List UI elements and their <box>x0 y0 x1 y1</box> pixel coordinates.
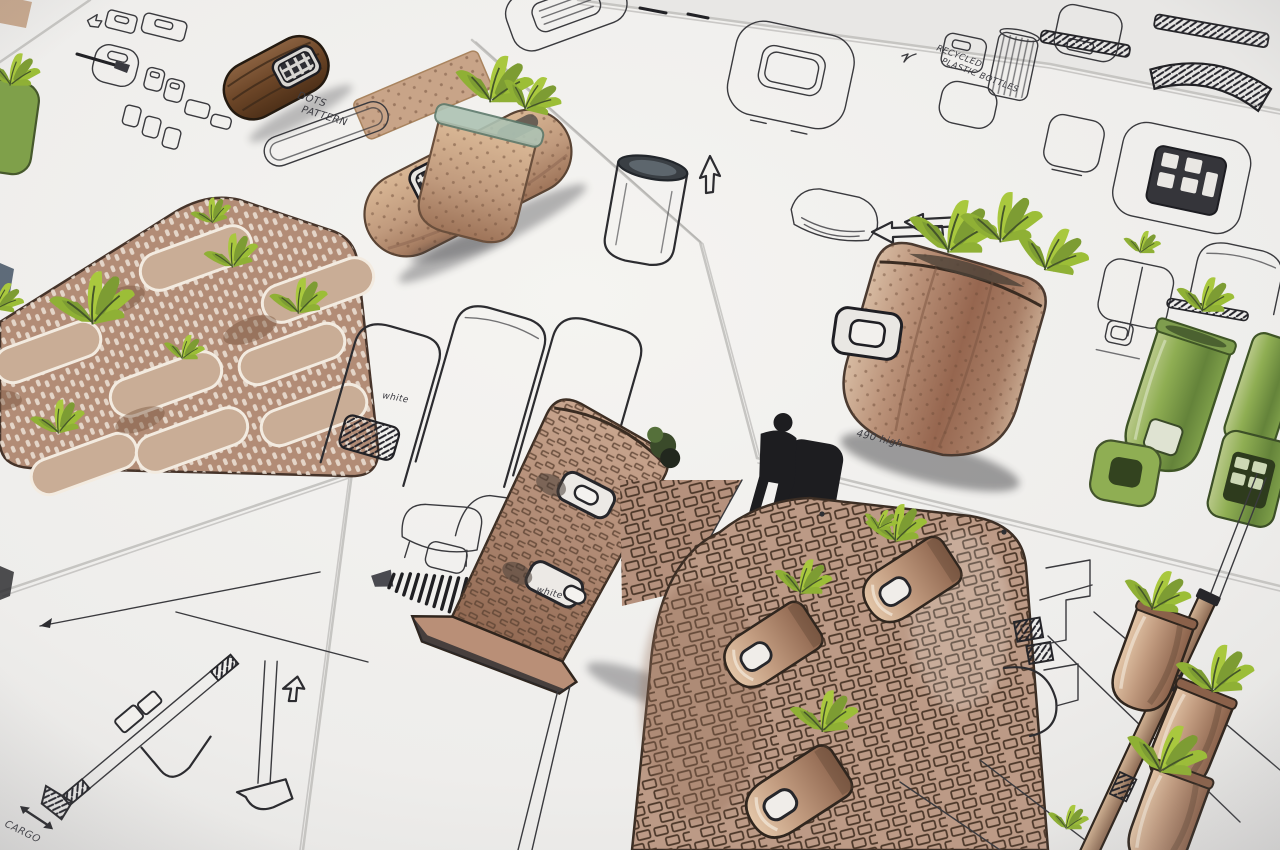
photo-vignette <box>0 0 1280 850</box>
sketch-canvas: DOTS PATTERN <box>0 0 1280 850</box>
photo-industrial-design-sketches: DOTS PATTERN <box>0 0 1280 850</box>
